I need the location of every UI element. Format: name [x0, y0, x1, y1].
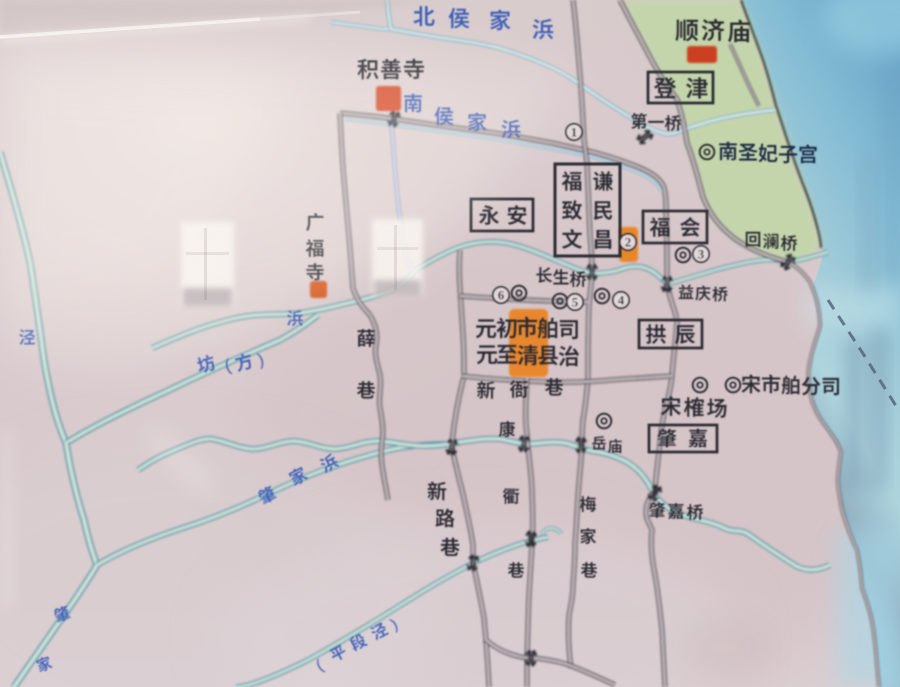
svg-text:4: 4: [618, 293, 625, 308]
svg-text:5: 5: [572, 295, 579, 310]
svg-text:3: 3: [698, 247, 705, 262]
svg-text:1: 1: [571, 125, 578, 140]
svg-text:6: 6: [498, 288, 505, 303]
svg-text:2: 2: [625, 235, 632, 250]
